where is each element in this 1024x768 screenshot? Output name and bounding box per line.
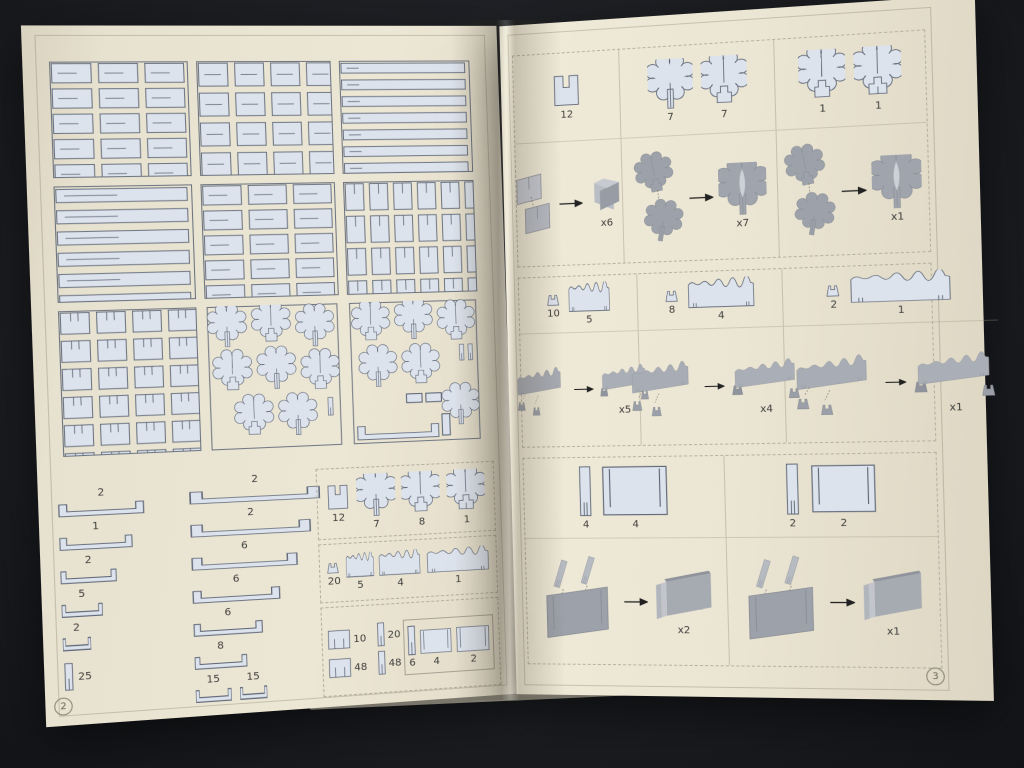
parts-input-icon: [785, 351, 881, 415]
qty-label: 6: [233, 573, 240, 585]
strip-part-icon: [377, 650, 386, 675]
stake-part: 12: [552, 73, 581, 121]
channel-part-icon: [190, 516, 312, 538]
assembly-output: x1: [871, 153, 923, 223]
parts-cell: 1 1: [774, 30, 926, 130]
fence-panel-icon: [378, 549, 421, 577]
parts-cell: 7 7: [619, 40, 776, 139]
assembly-cell: x1: [777, 123, 931, 257]
qty-label: 8: [419, 516, 426, 527]
page-number-text: 2: [60, 701, 67, 712]
qty-label: x1: [891, 211, 905, 223]
fence-part: 5: [567, 281, 610, 326]
post-part: 2: [825, 280, 842, 311]
instruction-booklet: 2 1 2 5 2 25 2 2 6 6 6 8 15 15: [50, 23, 967, 697]
qty-label: 1: [455, 574, 462, 585]
qty-label: 2: [830, 299, 837, 311]
channel-parts-column-left: 2 1 2 5 2 25: [57, 485, 150, 691]
assembled-tree-icon: [717, 161, 766, 217]
qty-label: 7: [721, 109, 728, 121]
qty-label: 20: [328, 576, 341, 588]
parts-input-icon: [513, 172, 554, 238]
assembly-cell: x1: [784, 321, 1001, 443]
qty-label: 12: [332, 512, 345, 524]
assembled-wall-icon: [652, 567, 715, 622]
assembly-section-walls: 4 4 2 2 x2: [522, 452, 942, 669]
qty-label: 1: [875, 100, 882, 112]
qty-label: x1: [887, 626, 901, 638]
channel-part: 6: [192, 571, 281, 604]
assembly-section-trees: 12 7 7 1 1 x6: [512, 29, 931, 267]
channel-part-icon: [192, 583, 281, 604]
tree-part: 7: [355, 472, 396, 531]
stake-icon: [326, 483, 350, 511]
square-part-icon: [327, 629, 350, 650]
strip-part: 48: [377, 649, 402, 675]
fence-part: 1: [848, 269, 953, 317]
channel-part: 15: [195, 673, 232, 703]
qty-label: 2: [840, 518, 847, 529]
tree-part-icon: [798, 48, 846, 103]
assembly-step: x4: [622, 355, 804, 417]
assembly-step: x1: [741, 554, 927, 651]
parts-cell: 2 1: [782, 261, 998, 327]
qty-label: 4: [433, 655, 440, 667]
channel-part-icon: [60, 566, 117, 585]
channel-parts-column-right: 2 2 6 6 6 8 15 15: [188, 471, 328, 708]
post-icon: [825, 280, 841, 297]
qty-label: x6: [601, 217, 614, 229]
cut-sheet-planks: [53, 184, 197, 304]
channel-part-icon: [240, 683, 268, 700]
tree-part-icon: [401, 470, 441, 515]
square-part-icon: [328, 658, 351, 679]
assembly-step: x2: [538, 554, 715, 648]
wall-post-icon: [783, 462, 801, 516]
channel-part-icon: [191, 550, 298, 571]
tree-part: 7: [646, 57, 693, 124]
channel-part-icon: [193, 617, 263, 637]
channel-part-icon: [59, 532, 133, 552]
qty-label: 5: [357, 580, 364, 592]
stake-part: 12: [326, 483, 350, 524]
arrow-icon: [573, 385, 593, 394]
qty-label: 25: [78, 671, 92, 683]
tree-part-icon: [853, 45, 902, 100]
tree-parts-box: 12 7 8 1: [316, 461, 497, 541]
tree-part: 7: [700, 54, 747, 121]
tree-part-icon: [355, 472, 395, 517]
qty-label: 12: [560, 109, 573, 121]
qty-label: 4: [632, 519, 639, 530]
qty-label: 6: [409, 657, 416, 669]
qty-label: 1: [92, 521, 99, 533]
post-icon: [664, 286, 680, 303]
assembly-step: x1: [783, 136, 923, 244]
channel-part: 15: [239, 670, 267, 700]
qty-label: 2: [247, 507, 254, 519]
cut-sheet-bars-1: [338, 60, 473, 174]
tree-part-icon: [700, 54, 747, 108]
page-right: 12 7 7 1 1 x6: [499, 0, 994, 701]
cut-sheet-small-parts: [57, 307, 202, 458]
qty-label: 6: [241, 540, 248, 552]
channel-part-icon: [196, 685, 232, 703]
wall-panel-part: 4: [601, 464, 670, 531]
parts-input-icon: [741, 554, 826, 650]
channel-part: 2: [57, 485, 144, 517]
assembly-output: x7: [717, 161, 767, 230]
tree-part: 1: [446, 468, 486, 526]
assembled-tree-icon: [871, 153, 922, 210]
arrow-icon: [703, 382, 724, 391]
qty-label: 15: [246, 671, 260, 683]
tree-part-icon: [646, 57, 693, 111]
fence-part: 4: [378, 549, 422, 590]
wall-panel-icon: [809, 461, 877, 516]
qty-label: 20: [387, 629, 400, 641]
assembly-cell: x6: [515, 139, 624, 267]
wall-post-part: 2: [783, 462, 802, 529]
wall-panel-part: 4: [419, 626, 453, 667]
channel-part: 6: [193, 605, 263, 637]
arrow-icon: [841, 185, 867, 196]
qty-label: 5: [78, 588, 85, 600]
qty-label: 15: [206, 674, 220, 686]
fence-panel-icon: [345, 552, 375, 579]
wall-panel-icon: [419, 626, 452, 654]
assembly-output: x1: [911, 348, 1001, 414]
parts-input-icon: [622, 358, 699, 417]
channel-part: 2: [188, 471, 321, 505]
channel-part: 2: [60, 553, 117, 584]
post-icon: [326, 558, 341, 574]
qty-label: 4: [583, 519, 590, 530]
qty-label: 2: [251, 474, 258, 486]
assembly-step: x6: [513, 168, 627, 238]
bar-part-icon: [407, 625, 416, 656]
channel-part-icon: [61, 600, 103, 618]
strip-part-icon: [376, 622, 385, 647]
page-number-right: 3: [926, 667, 945, 685]
small-parts-grid: 10 20 48 48: [327, 621, 402, 679]
channel-part: 5: [61, 587, 103, 618]
tree-part: 1: [798, 48, 847, 116]
parts-cell: 8 4: [637, 269, 784, 331]
wall-post-part: 4: [577, 465, 593, 531]
channel-part: 8: [194, 639, 248, 670]
square-part: 10: [327, 628, 366, 650]
qty-label: 7: [373, 519, 380, 530]
fence-parts-box: 20 5 4 1: [318, 535, 498, 604]
assembly-cell: x2: [526, 538, 730, 665]
channel-part-icon: [63, 634, 92, 651]
qty-label: 7: [667, 112, 674, 124]
parts-cell: 2 2: [724, 453, 937, 538]
qty-label: 2: [470, 653, 477, 664]
bar-part: 6: [407, 625, 417, 669]
qty-label: x7: [736, 217, 749, 229]
arrow-icon: [558, 198, 582, 208]
assembly-section-fences: 10 5 8 4 2 1 x5: [518, 263, 937, 448]
tree-part-icon: [446, 468, 485, 513]
qty-label: 6: [224, 607, 231, 619]
page-number-text: 3: [932, 671, 939, 682]
photo-background: 2 1 2 5 2 25 2 2 6 6 6 8 15 15: [0, 0, 1024, 768]
qty-label: 8: [669, 305, 676, 316]
channel-part: 2: [189, 504, 311, 538]
fence-part: 1: [425, 545, 490, 587]
strip-part: 25: [64, 661, 93, 691]
parts-cell: 12: [513, 50, 622, 145]
assembly-cell: x1: [727, 537, 942, 668]
qty-label: x1: [949, 401, 963, 413]
qty-label: 10: [353, 633, 366, 645]
cut-sheet-mixed: [200, 182, 339, 300]
post-part: 10: [545, 290, 561, 320]
arrow-icon: [623, 597, 648, 606]
qty-label: 48: [388, 657, 401, 669]
wall-parts-subbox: 6 4 2: [403, 614, 495, 675]
qty-label: 1: [819, 103, 826, 115]
qty-label: 48: [354, 662, 367, 674]
cut-sheets-grid: [48, 60, 483, 457]
assembly-step: x7: [632, 144, 767, 250]
wall-post-icon: [577, 465, 592, 518]
qty-label: 2: [73, 622, 80, 634]
channel-part-icon: [194, 651, 247, 670]
strip-part-icon: [64, 662, 75, 691]
page-number-left: 2: [54, 697, 73, 716]
qty-label: 1: [464, 514, 471, 525]
tree-part: 1: [853, 45, 902, 114]
qty-label: 1: [898, 304, 905, 316]
post-icon: [545, 290, 560, 307]
parts-cell: 10 5: [519, 274, 639, 334]
cut-sheet-blocks-2: [196, 60, 336, 176]
channel-part-icon: [58, 498, 145, 518]
small-parts-box: 10 20 48 48 6 4 2: [320, 597, 501, 697]
channel-part-pair: 15 15: [195, 670, 268, 708]
cut-sheet-trees-1: [204, 303, 344, 451]
qty-label: 10: [547, 308, 560, 319]
channel-part-icon: [189, 483, 321, 505]
qty-label: 5: [586, 314, 593, 325]
cut-sheet-blocks-1: [48, 61, 192, 179]
assembly-cell: x7: [621, 131, 779, 263]
fence-panel-icon: [425, 545, 490, 574]
square-part: 48: [328, 657, 367, 679]
parts-input-icon: [783, 140, 837, 244]
qty-label: 2: [97, 487, 104, 499]
tree-part: 8: [401, 470, 441, 528]
qty-label: x2: [678, 624, 691, 635]
assembly-cell: x4: [639, 327, 787, 445]
assembly-output: x6: [587, 173, 627, 229]
assembled-cross-icon: [587, 173, 627, 216]
qty-label: 2: [789, 518, 796, 529]
stake-icon: [552, 73, 581, 108]
fence-part: 4: [686, 276, 756, 322]
arrow-icon: [688, 192, 713, 202]
qty-label: 4: [718, 310, 725, 321]
parts-cell: 4 4: [523, 456, 726, 539]
assembled-fence-icon: [911, 348, 1000, 401]
wall-panel-part: 2: [456, 624, 491, 665]
qty-label: x4: [760, 403, 773, 415]
arrow-icon: [829, 597, 855, 606]
qty-label: 4: [397, 577, 404, 588]
fence-panel-icon: [567, 281, 610, 313]
qty-label: 8: [217, 640, 224, 652]
assembly-output: x2: [652, 567, 716, 636]
parts-input-icon: [538, 555, 619, 648]
parts-input-icon: [632, 148, 684, 250]
wall-panel-icon: [601, 464, 670, 517]
qty-label: 2: [84, 555, 91, 567]
arrow-icon: [885, 378, 907, 387]
page-left: 2 1 2 5 2 25 2 2 6 6 6 8 15 15: [21, 25, 520, 727]
assembly-output: x1: [860, 567, 927, 637]
post-part: 20: [326, 558, 341, 587]
fence-part: 5: [345, 552, 375, 592]
fence-panel-icon: [686, 276, 755, 309]
wall-panel-icon: [456, 624, 491, 652]
post-part: 8: [664, 286, 680, 316]
assembly-step: x1: [785, 348, 1001, 417]
fence-panel-icon: [848, 269, 953, 304]
channel-part: 2: [62, 622, 91, 652]
assembled-wall-icon: [860, 567, 926, 624]
cut-sheet-trees-2: [347, 299, 483, 445]
parts-input-icon: [510, 364, 569, 415]
channel-part: 1: [58, 519, 132, 551]
strip-part: 20: [376, 621, 401, 647]
channel-part: 6: [190, 537, 298, 571]
cut-sheet-cells: [342, 179, 477, 295]
wall-panel-part: 2: [809, 461, 877, 529]
